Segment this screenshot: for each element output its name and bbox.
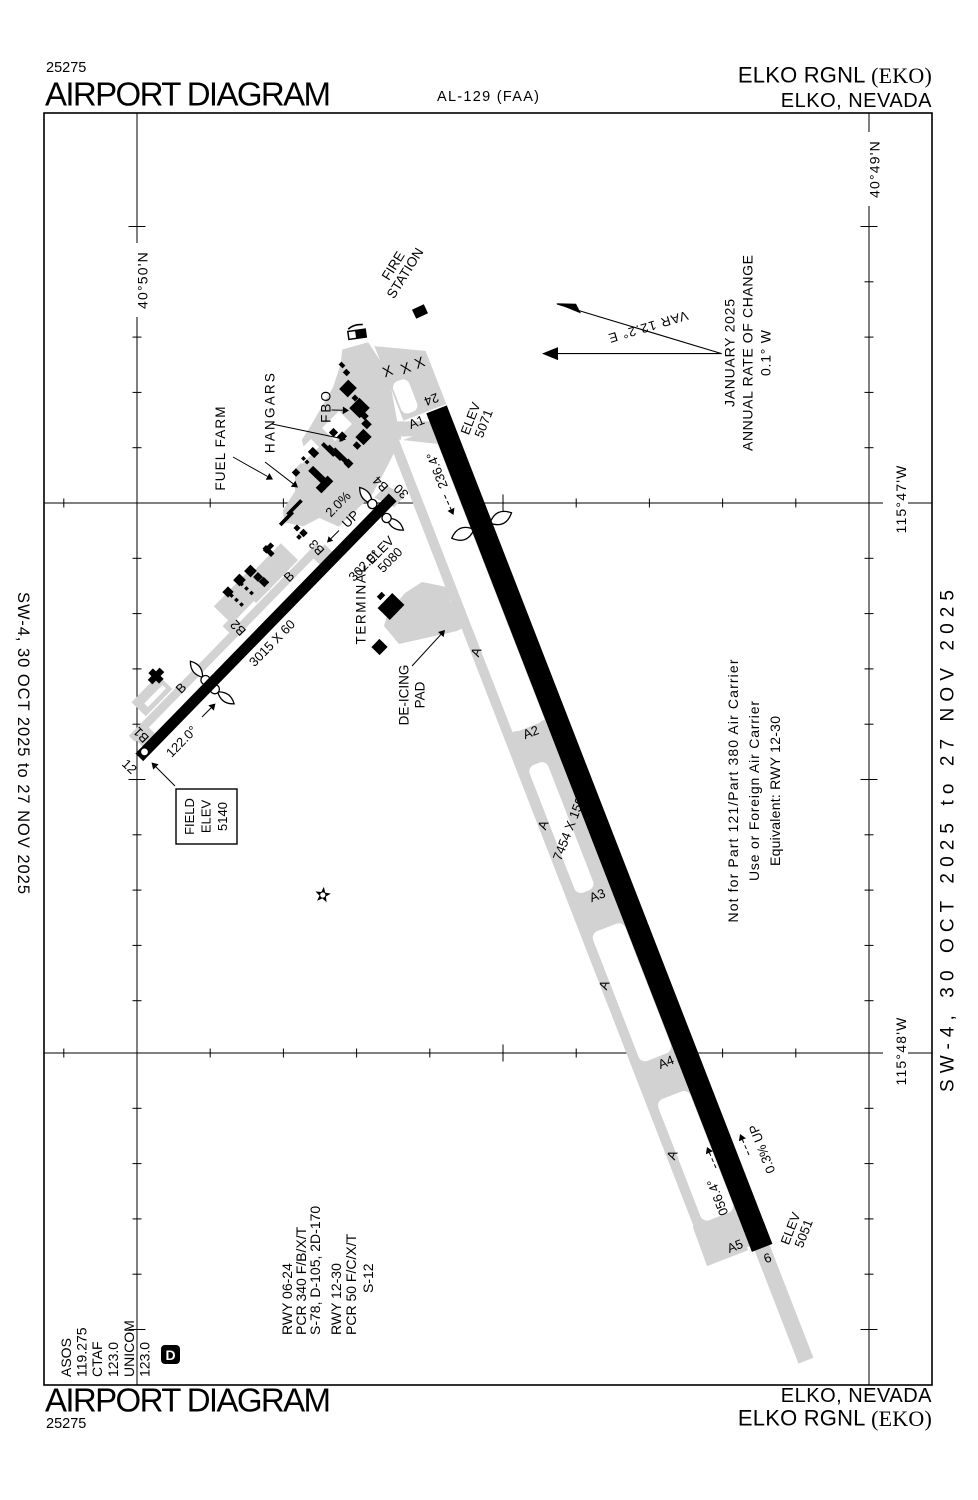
svg-text:ANNUAL RATE OF CHANGE: ANNUAL RATE OF CHANGE xyxy=(740,255,756,451)
svg-text:S-78, D-105, 2D-170: S-78, D-105, 2D-170 xyxy=(307,1206,323,1335)
svg-text:JANUARY 2025: JANUARY 2025 xyxy=(722,299,738,407)
svg-text:FUEL FARM: FUEL FARM xyxy=(213,405,228,490)
svg-text:ELKO, NEVADA: ELKO, NEVADA xyxy=(781,90,932,112)
svg-text:AIRPORT DIAGRAM: AIRPORT DIAGRAM xyxy=(45,1382,331,1419)
svg-text:ELKO RGNL (EKO): ELKO RGNL (EKO) xyxy=(738,1406,932,1431)
svg-text:FBO: FBO xyxy=(319,389,334,423)
svg-text:119.275: 119.275 xyxy=(74,1327,90,1377)
svg-text:25275: 25275 xyxy=(46,60,86,76)
svg-text:123.0: 123.0 xyxy=(137,1342,153,1377)
svg-text:DE-ICING: DE-ICING xyxy=(397,665,412,726)
svg-text:Equivalent: RWY 12-30: Equivalent: RWY 12-30 xyxy=(767,716,783,866)
svg-text:ELKO RGNL (EKO): ELKO RGNL (EKO) xyxy=(738,63,932,88)
svg-text:AIRPORT DIAGRAM: AIRPORT DIAGRAM xyxy=(45,76,331,113)
svg-text:ASOS: ASOS xyxy=(58,1338,74,1377)
svg-text:5140: 5140 xyxy=(215,802,230,831)
svg-text:ELKO, NEVADA: ELKO, NEVADA xyxy=(781,1385,932,1407)
svg-text:AL-129 (FAA): AL-129 (FAA) xyxy=(437,89,539,105)
svg-text:RWY 12-30: RWY 12-30 xyxy=(328,1263,344,1335)
svg-text:40°49'N: 40°49'N xyxy=(867,140,883,198)
svg-text:Not for Part 121/Part 380 Air: Not for Part 121/Part 380 Air Carrier xyxy=(725,659,741,922)
svg-text:115°47'W: 115°47'W xyxy=(893,465,909,534)
svg-text:UNICOM: UNICOM xyxy=(121,1320,137,1377)
svg-text:S-12: S-12 xyxy=(360,1263,376,1293)
svg-text:FIELD: FIELD xyxy=(182,798,197,835)
svg-text:HANGARS: HANGARS xyxy=(263,371,278,453)
svg-text:40°50'N: 40°50'N xyxy=(135,251,151,309)
svg-text:25275: 25275 xyxy=(46,1416,86,1432)
svg-text:CTAF: CTAF xyxy=(89,1341,105,1377)
svg-text:SW-4, 30 OCT 2025 to 27 NOV 20: SW-4, 30 OCT 2025 to 27 NOV 2025 xyxy=(14,592,32,894)
svg-text:Use or Foreign Air Carrier: Use or Foreign Air Carrier xyxy=(746,701,762,881)
svg-text:D: D xyxy=(165,1347,175,1363)
svg-text:0.1° W: 0.1° W xyxy=(758,329,774,376)
svg-text:ELEV: ELEV xyxy=(199,800,214,834)
svg-text:PCR 50 F/C/X/T: PCR 50 F/C/X/T xyxy=(343,1233,359,1335)
svg-text:123.0: 123.0 xyxy=(105,1342,121,1377)
svg-text:PAD: PAD xyxy=(413,681,428,708)
svg-text:115°48'W: 115°48'W xyxy=(893,1017,909,1086)
